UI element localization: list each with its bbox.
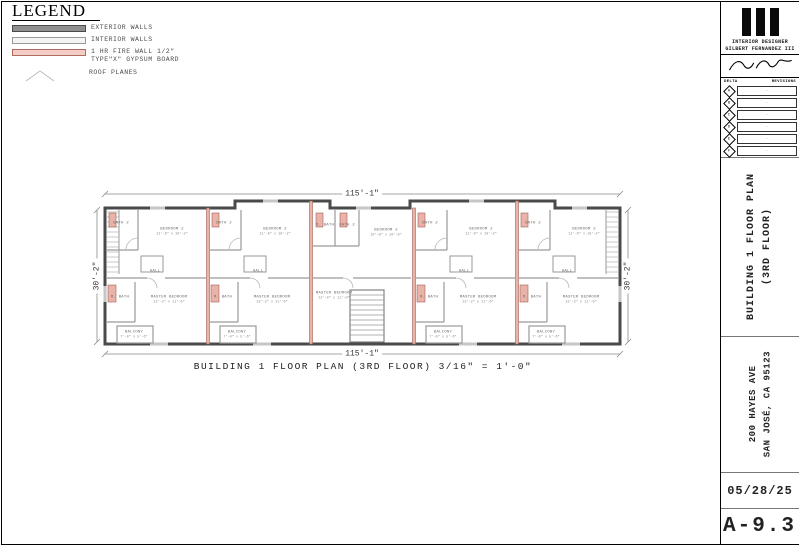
- plan-caption: BUILDING 1 FLOOR PLAN (3RD FLOOR) 3/16" …: [88, 361, 638, 372]
- legend-item-label: 1 HR FIRE WALL 1/2" TYPE"X" GYPSUM BOARD: [91, 48, 179, 64]
- room-label: M. BATH: [214, 296, 232, 301]
- room-label: M. BATH: [316, 224, 334, 229]
- revision-note-box: -: [737, 110, 797, 120]
- revision-row: C-: [723, 109, 797, 121]
- room-label: BATH 2: [216, 222, 232, 227]
- room-label: HALL: [253, 270, 263, 275]
- delta-diamond: A: [723, 85, 736, 98]
- room-label: HALL: [150, 270, 160, 275]
- project-address: 200 HAYES AVE SAN JOSÉ, CA 95123: [746, 351, 775, 457]
- sheet-title: BUILDING 1 FLOOR PLAN (3RD FLOOR): [744, 173, 776, 320]
- legend-title: LEGEND: [12, 2, 100, 21]
- room-label: BATH 2: [525, 222, 541, 227]
- room-label: BATH 2: [339, 224, 355, 229]
- sheet-date: 05/28/25: [721, 473, 799, 508]
- address-block: 200 HAYES AVE SAN JOSÉ, CA 95123: [721, 337, 799, 472]
- revisions-header: REVISIONS: [772, 80, 796, 84]
- signature-scribble: [726, 56, 794, 76]
- titleblock: INTERIOR DESIGNER GILBERT FERNANDEZ III …: [720, 2, 799, 544]
- delta-diamond: C: [723, 109, 736, 122]
- legend-item-label: EXTERIOR WALLS: [91, 24, 153, 32]
- legend-item-label: ROOF PLANES: [89, 69, 137, 77]
- room-label: M. BATH: [111, 296, 129, 301]
- revision-row: F-: [723, 145, 797, 157]
- revision-row: E-: [723, 133, 797, 145]
- legend-item: ROOF PLANES: [12, 69, 212, 82]
- interior-swatch: [12, 37, 86, 44]
- legend-item: INTERIOR WALLS: [12, 36, 212, 44]
- signature: [721, 55, 799, 78]
- dim-left: 30'-2": [93, 259, 102, 294]
- room-label: BALCONY7'-0" x 5'-6": [120, 331, 147, 340]
- legend-item: EXTERIOR WALLS: [12, 24, 212, 32]
- logo-bar: [742, 8, 751, 36]
- delta-diamond: F: [723, 145, 736, 158]
- room-label: MASTER BEDROOM13'-2" x 11'-6": [460, 296, 496, 305]
- room-label: BATH 2: [422, 222, 438, 227]
- delta-diamond: D: [723, 121, 736, 134]
- firewall-swatch: [12, 49, 86, 56]
- revision-row: A-: [723, 85, 797, 97]
- room-label: BATH 2: [113, 222, 129, 227]
- roof-swatch: [12, 69, 84, 82]
- revision-row: D-: [723, 121, 797, 133]
- dim-bottom: 115'-1": [342, 350, 382, 359]
- room-label: BALCONY7'-0" x 5'-6": [223, 331, 250, 340]
- delta-diamond: B: [723, 97, 736, 110]
- floor-plan-drawing: [88, 186, 638, 371]
- room-label: M. BATH: [420, 296, 438, 301]
- firm-name: INTERIOR DESIGNER GILBERT FERNANDEZ III: [721, 39, 799, 55]
- room-label: HALL: [459, 270, 469, 275]
- revision-rows: A-B-C-D-E-F-: [721, 85, 799, 157]
- sheet-title-line1: BUILDING 1 FLOOR PLAN: [744, 173, 760, 320]
- address-line1: 200 HAYES AVE: [746, 351, 760, 457]
- revision-header: DELTA REVISIONS: [721, 78, 799, 85]
- center-stairs: [350, 290, 384, 342]
- firm-line2: GILBERT FERNANDEZ III: [721, 46, 799, 53]
- revision-note-box: -: [737, 146, 797, 156]
- delta-diamond: E: [723, 133, 736, 146]
- room-label: BALCONY7'-0" x 5'-6": [429, 331, 456, 340]
- room-label: BEDROOM 211'-6" x 10'-2": [259, 228, 291, 237]
- room-label: BEDROOM 210'-8" x 10'-0": [370, 229, 402, 238]
- sheet-title-block: BUILDING 1 FLOOR PLAN (3RD FLOOR): [721, 158, 799, 336]
- floor-plan: 115'-1" 115'-1" 30'-2" 30'-2" BATH 2BEDR…: [88, 186, 638, 371]
- revision-note-box: -: [737, 98, 797, 108]
- room-label: MASTER BEDROOM13'-2" x 11'-6": [151, 296, 187, 305]
- revision-note-box: -: [737, 122, 797, 132]
- address-line2: SAN JOSÉ, CA 95123: [760, 351, 774, 457]
- firm-line1: INTERIOR DESIGNER: [721, 39, 799, 46]
- sheet-number: A-9.3: [721, 509, 799, 544]
- sheet-title-line2: (3RD FLOOR): [760, 173, 776, 320]
- legend-item: 1 HR FIRE WALL 1/2" TYPE"X" GYPSUM BOARD: [12, 48, 212, 64]
- room-label: BALCONY7'-0" x 5'-6": [532, 331, 559, 340]
- room-label: M. BATH: [523, 296, 541, 301]
- room-label: MASTER BEDROOM12'-0" x 11'-0": [316, 292, 352, 301]
- legend: LEGEND EXTERIOR WALLSINTERIOR WALLS1 HR …: [12, 2, 212, 86]
- room-label: MASTER BEDROOM13'-2" x 11'-6": [254, 296, 290, 305]
- room-label: BEDROOM 211'-6" x 10'-2": [568, 228, 600, 237]
- room-label: BEDROOM 211'-6" x 10'-2": [465, 228, 497, 237]
- room-label: BEDROOM 211'-6" x 10'-2": [156, 228, 188, 237]
- firm-logo: [721, 8, 799, 36]
- delta-header: DELTA: [724, 80, 738, 84]
- revision-note-box: -: [737, 134, 797, 144]
- logo-bar: [756, 8, 765, 36]
- revision-row: B-: [723, 97, 797, 109]
- dim-right: 30'-2": [624, 259, 633, 294]
- room-label: HALL: [562, 270, 572, 275]
- logo-bar: [770, 8, 779, 36]
- dim-top: 115'-1": [342, 190, 382, 199]
- legend-items: EXTERIOR WALLSINTERIOR WALLS1 HR FIRE WA…: [12, 24, 212, 82]
- legend-item-label: INTERIOR WALLS: [91, 36, 153, 44]
- revision-note-box: -: [737, 86, 797, 96]
- room-label: MASTER BEDROOM13'-2" x 11'-6": [563, 296, 599, 305]
- exterior-swatch: [12, 25, 86, 32]
